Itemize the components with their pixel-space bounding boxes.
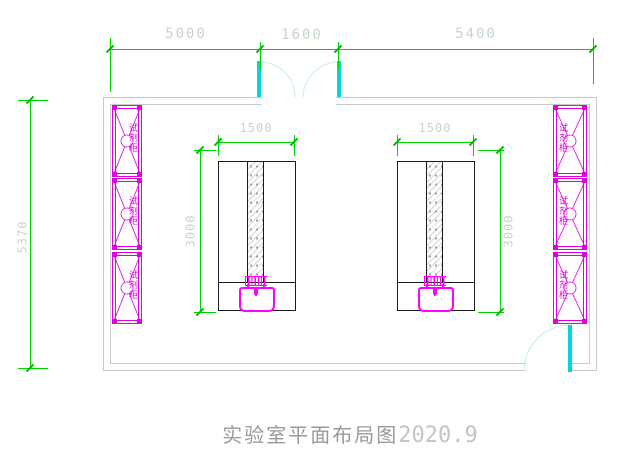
reagent-cabinet: 试剂柜 [112, 105, 142, 177]
reagent-cabinet: 试剂柜 [553, 178, 587, 250]
drawing-title-date: 2020.9 [398, 423, 477, 448]
drawing-title: 实验室平面布局图2020.9 [200, 419, 500, 448]
left-dimension-line [30, 100, 31, 368]
room-wall-inner [110, 104, 590, 364]
left-bench-column [247, 162, 264, 282]
floor-plan-drawing: 5000 1600 5400 5370 1500 3000 1500 [0, 0, 619, 469]
left-bench-width-dim-line [218, 142, 295, 143]
dim-label-1600: 1600 [272, 27, 332, 43]
top-dimension-line [110, 49, 593, 50]
reagent-cabinet: 试剂柜 [553, 252, 587, 324]
cabinet-label: 试剂柜 [128, 271, 139, 301]
left-device-drop [254, 289, 258, 296]
left-dim-ext-bottom [18, 368, 48, 369]
cabinet-label: 试剂柜 [558, 271, 569, 301]
dim-label-3000-right: 3000 [502, 209, 516, 254]
top-door-opening [262, 95, 336, 107]
reagent-cabinet: 试剂柜 [553, 105, 587, 177]
dim-label-1500-right: 1500 [400, 121, 470, 135]
right-device-drop [433, 289, 437, 296]
reagent-cabinet: 试剂柜 [112, 252, 142, 324]
cabinet-label: 试剂柜 [128, 124, 139, 154]
dim-label-1500-left: 1500 [221, 121, 291, 135]
right-bench-column [426, 162, 443, 282]
dim-label-5370: 5370 [16, 215, 30, 260]
left-dim-ext-top [18, 100, 48, 101]
right-bench-width-dim-line [397, 142, 474, 143]
drawing-title-text: 实验室平面布局图 [222, 423, 398, 447]
cabinet-label: 试剂柜 [128, 197, 139, 227]
left-bench-depth-dim-line [200, 150, 201, 312]
bottom-door-opening [526, 359, 568, 372]
reagent-cabinet: 试剂柜 [112, 178, 142, 250]
dim-label-3000-left: 3000 [184, 209, 198, 254]
single-door-leaf [568, 325, 572, 372]
dim-label-5400: 5400 [438, 26, 514, 42]
dim-label-5000: 5000 [148, 26, 224, 42]
cabinet-label: 试剂柜 [558, 197, 569, 227]
cabinet-label: 试剂柜 [558, 124, 569, 154]
